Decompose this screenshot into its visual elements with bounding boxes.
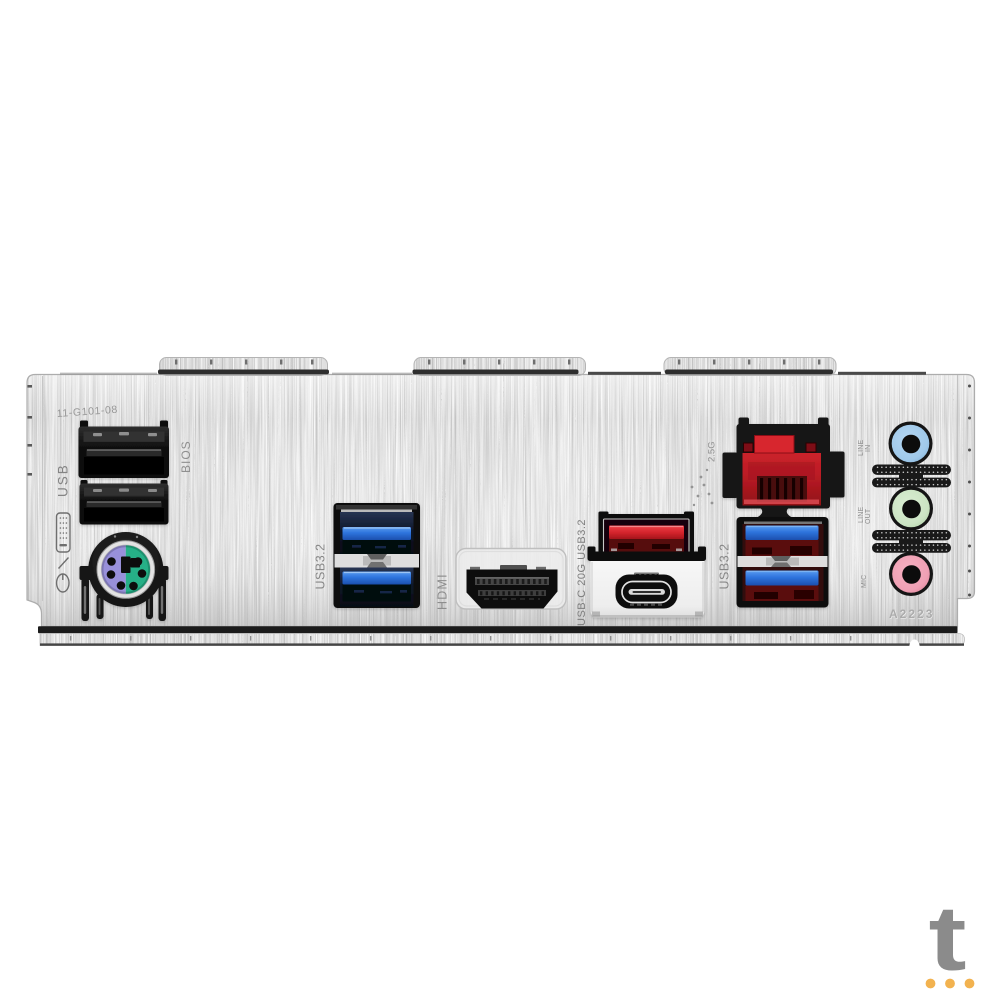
svg-text:HDMI: HDMI <box>436 573 450 610</box>
svg-text:USB: USB <box>56 463 71 497</box>
svg-text:A2223: A2223 <box>889 607 934 621</box>
svg-text:USB3.2: USB3.2 <box>314 543 328 589</box>
svg-text:OUT: OUT <box>865 508 872 524</box>
svg-text:2.5G: 2.5G <box>707 441 718 462</box>
svg-text:BIOS: BIOS <box>179 440 193 473</box>
svg-text:USB3.2: USB3.2 <box>718 543 732 589</box>
svg-text:LINE: LINE <box>858 507 865 523</box>
svg-text:MIC: MIC <box>861 575 868 588</box>
svg-text:USB-C 20G USB3.2: USB-C 20G USB3.2 <box>576 519 588 626</box>
svg-text:IN: IN <box>865 445 872 452</box>
svg-text:t: t <box>929 886 967 989</box>
svg-text:LINE: LINE <box>858 440 865 456</box>
